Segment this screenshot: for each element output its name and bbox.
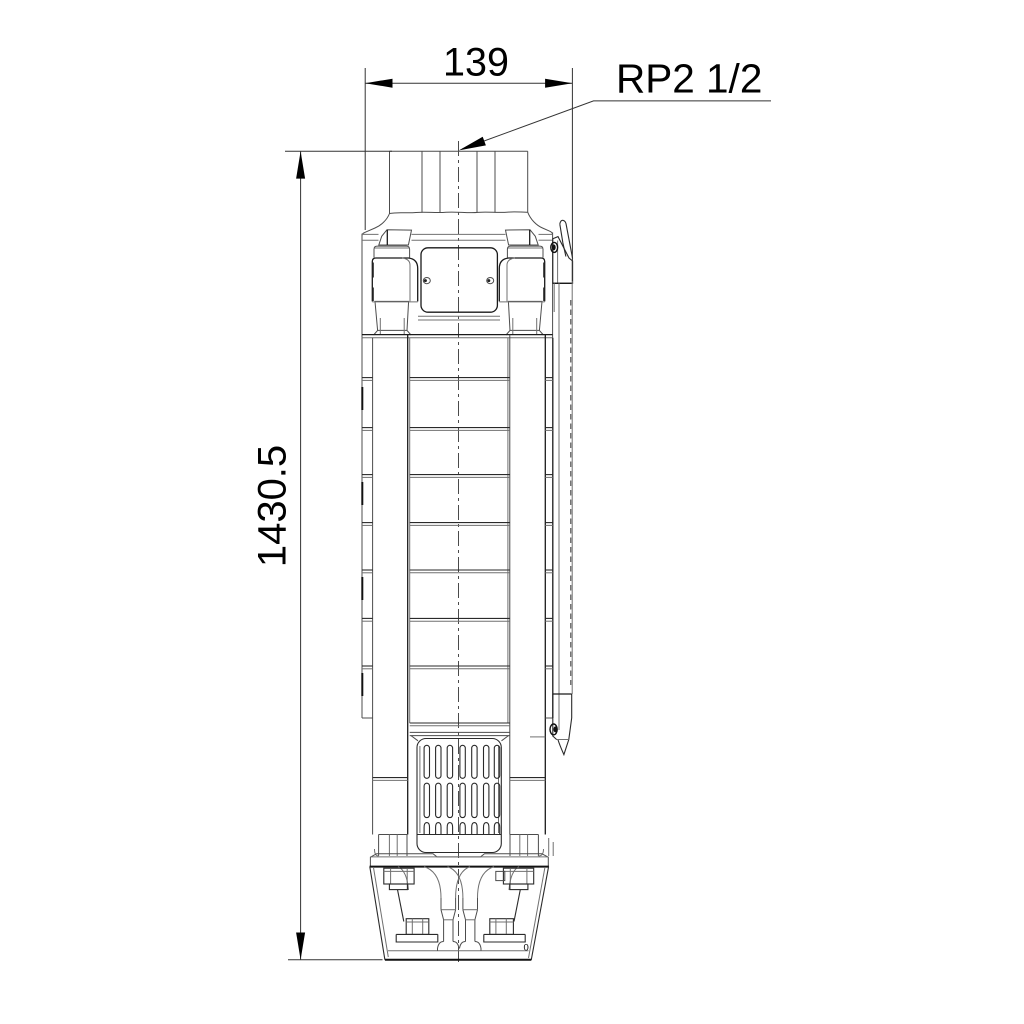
svg-text:1430.5: 1430.5 — [251, 445, 295, 567]
svg-text:RP2 1/2: RP2 1/2 — [616, 56, 762, 102]
svg-text:0: 0 — [524, 943, 529, 954]
svg-text:139: 139 — [443, 41, 509, 85]
